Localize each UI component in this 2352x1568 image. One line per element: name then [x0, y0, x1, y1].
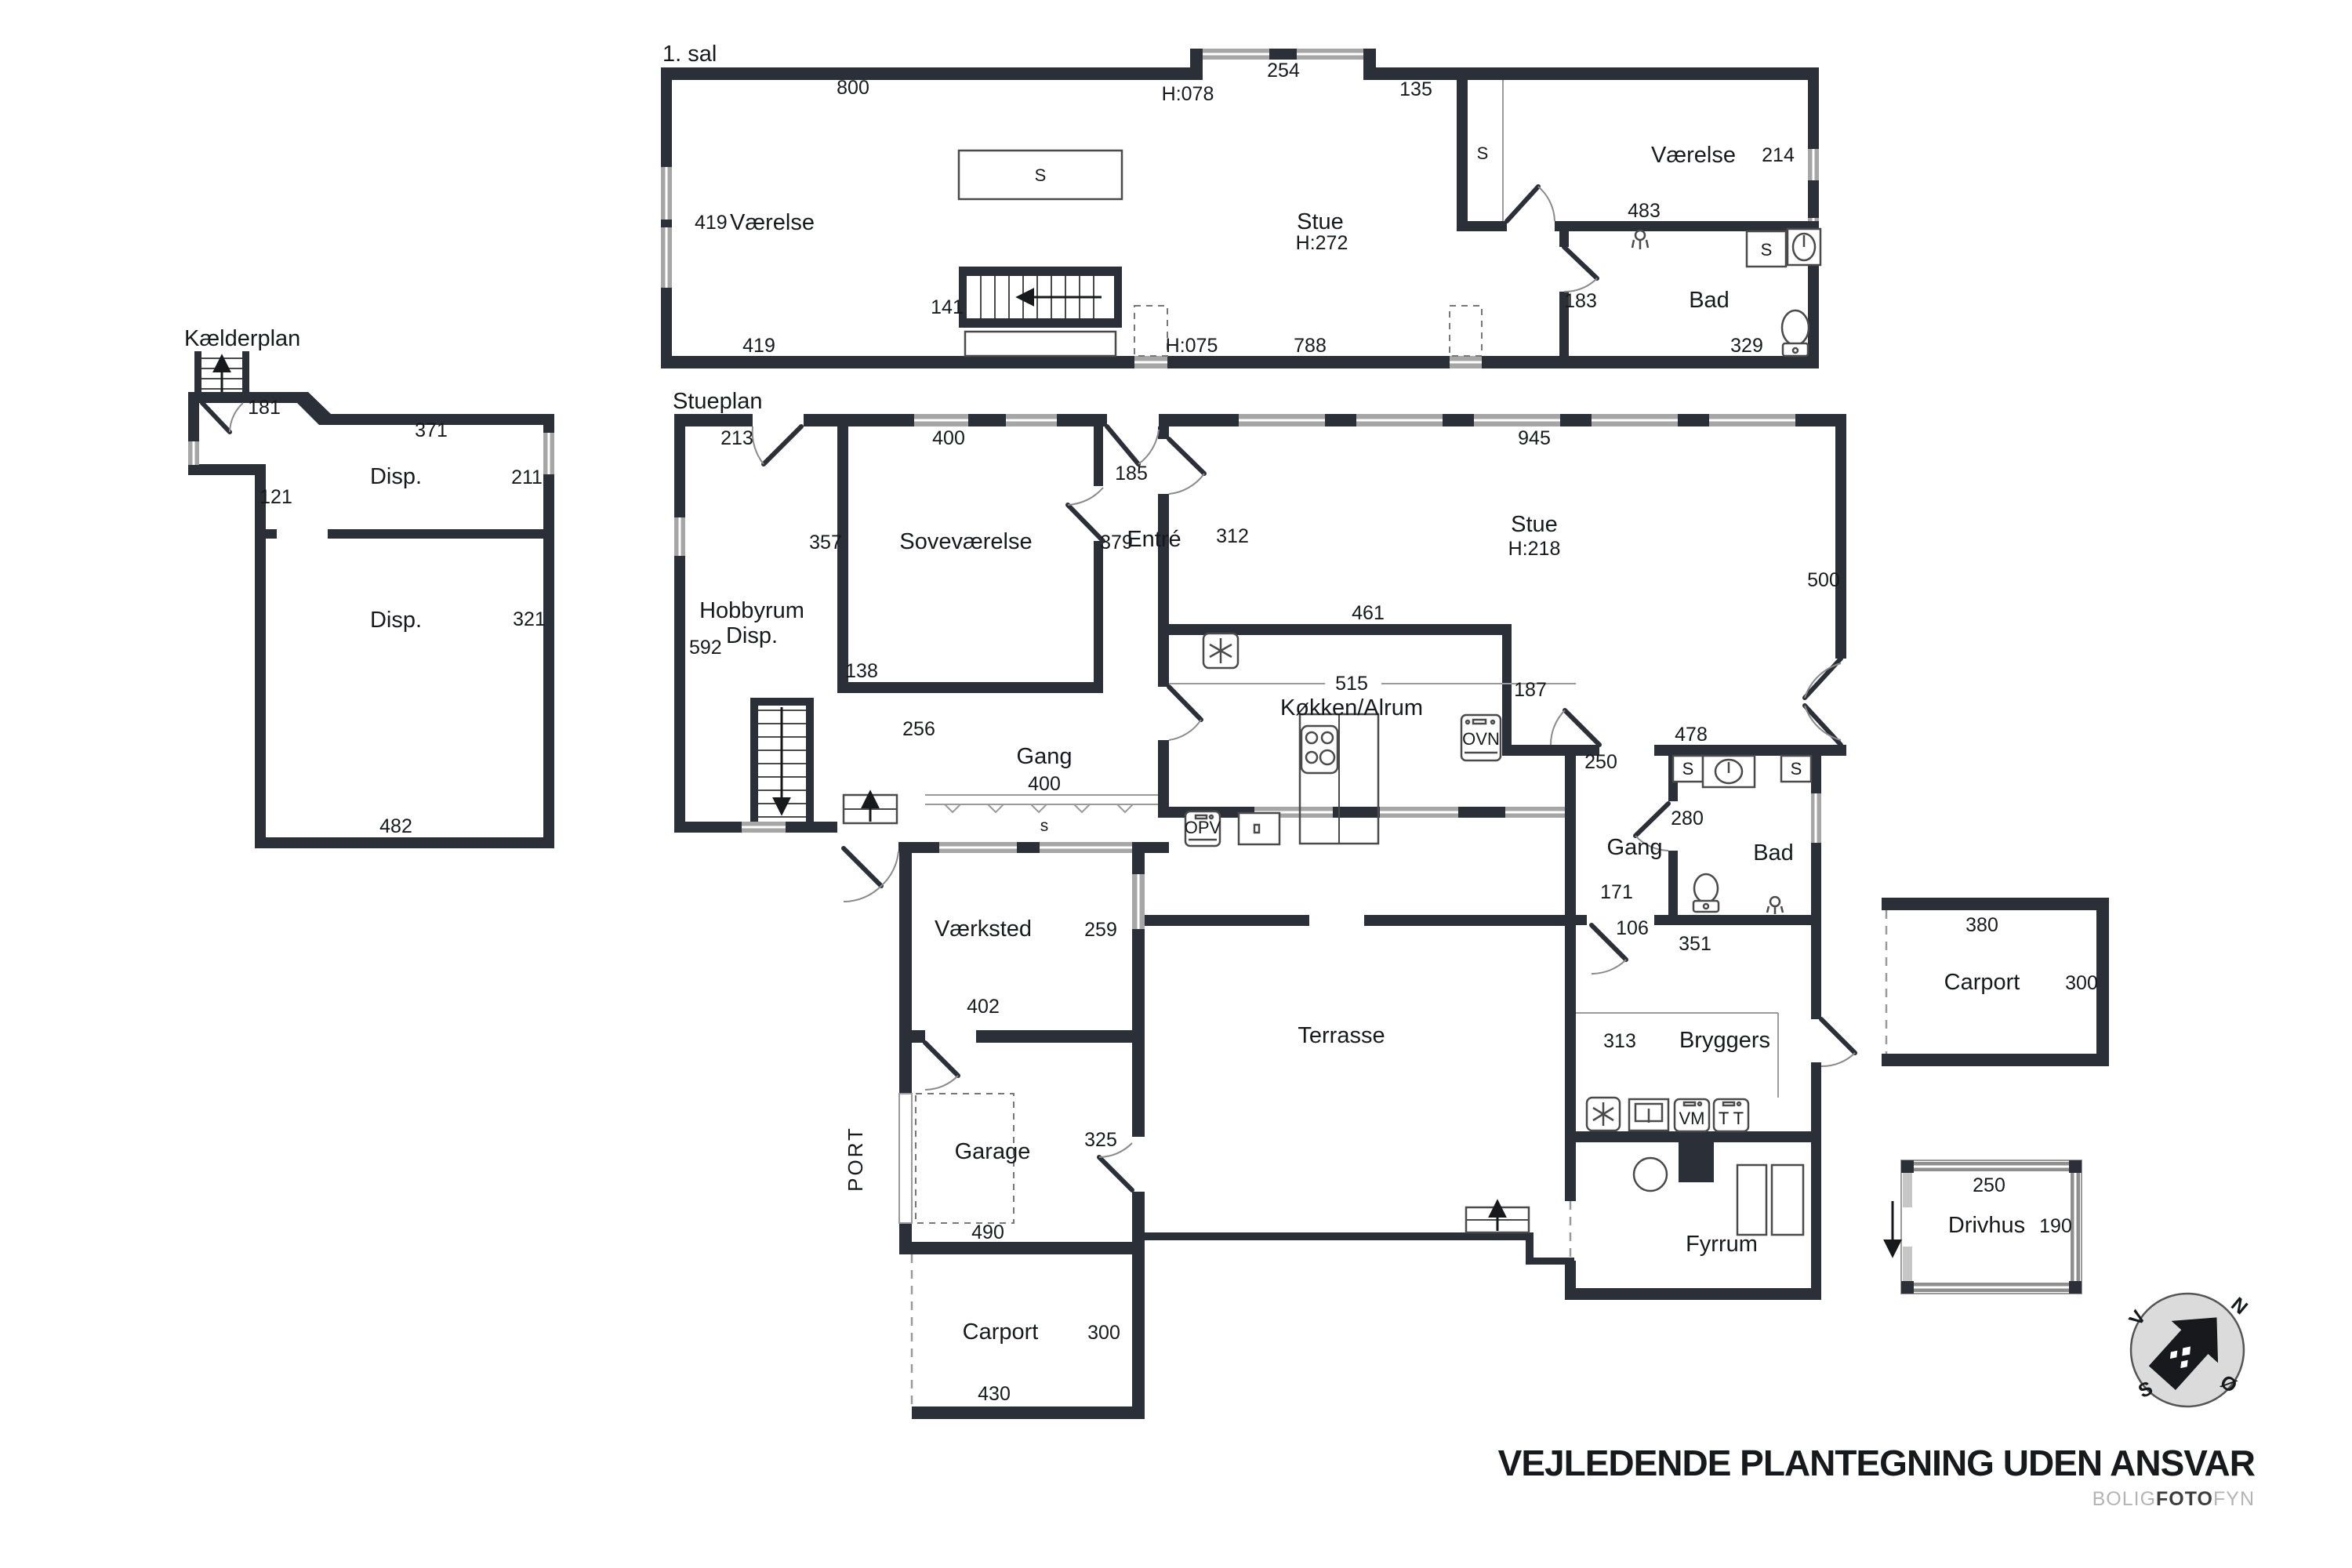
dim: 106 [1616, 917, 1649, 939]
dim: 478 [1675, 724, 1708, 746]
toilet-icon [1782, 310, 1809, 356]
wall [1811, 843, 1821, 1019]
door-leaf [202, 403, 230, 432]
brand-part-2: FOTO [2156, 1488, 2213, 1510]
wall [674, 822, 742, 833]
dim: 250 [1584, 751, 1617, 773]
door-arc [1592, 960, 1626, 974]
dim: 280 [1671, 808, 1704, 829]
door-arc [925, 1076, 958, 1090]
dim: 121 [260, 486, 292, 508]
dim: 187 [1514, 679, 1547, 701]
wall [1668, 915, 1811, 925]
door-leaf [1068, 505, 1103, 541]
brand-logo: BOLIGFOTOFYN [2092, 1488, 2255, 1510]
wall [1132, 1043, 1145, 1137]
stair-wall [806, 698, 814, 822]
wall [1808, 180, 1819, 218]
wall [1159, 414, 1239, 426]
room-label: Disp. [726, 623, 778, 648]
wall [1811, 1062, 1821, 1300]
door-leaf [1169, 439, 1204, 474]
room-label: Bryggers [1679, 1028, 1770, 1053]
basement-plan: Kælderplan [184, 326, 554, 848]
dim: 419 [742, 335, 775, 357]
wall [899, 842, 912, 1043]
stairs-down-icon [750, 698, 814, 822]
dim: 300 [1087, 1322, 1120, 1344]
wall [255, 837, 554, 848]
dim: 402 [967, 996, 1000, 1018]
room-label: Disp. [370, 464, 422, 489]
dim: 325 [1084, 1129, 1117, 1151]
dim: 461 [1352, 602, 1385, 624]
wall [1158, 635, 1169, 687]
wall [1363, 49, 1376, 80]
room-label: Hobbyrum [699, 598, 804, 623]
wall [1132, 842, 1145, 874]
door-arc [1821, 1053, 1855, 1066]
stair-wall [750, 698, 814, 706]
stair-wall [959, 318, 1122, 328]
dim: 138 [845, 660, 878, 682]
wall [1565, 1142, 1576, 1201]
wall [1376, 67, 1819, 80]
wall [1094, 426, 1103, 486]
room-label: Drivhus [1948, 1213, 2025, 1238]
dim: 500 [1807, 569, 1840, 591]
closet-hatches [945, 804, 1133, 812]
floorplan-page: 1. sal [0, 0, 2352, 1568]
wall [188, 392, 199, 441]
wall [976, 1030, 1145, 1043]
footer: VEJLEDENDE PLANTEGNING UDEN ANSVAR BOLIG… [1498, 1443, 2256, 1510]
wall [1017, 842, 1040, 853]
wall [837, 426, 848, 693]
corner-post [2069, 1281, 2082, 1294]
corner-post [1901, 1160, 1914, 1173]
terrace-edge [1145, 1232, 1531, 1240]
room-label: Disp. [370, 608, 422, 633]
wall [1565, 1288, 1821, 1300]
wardrobe-row [925, 795, 1158, 812]
wall [1364, 915, 1565, 926]
room-label: Stue [1511, 512, 1558, 537]
dim: 300 [2065, 972, 2098, 994]
wall [1325, 414, 1356, 426]
wall [255, 464, 266, 848]
first-floor-plan: 1. sal [661, 42, 1820, 368]
wall [1565, 915, 1587, 925]
terrace-steps-icon [1466, 1203, 1529, 1232]
dim: 483 [1628, 200, 1661, 222]
wall [1565, 925, 1576, 1142]
door-leaf [1099, 1157, 1132, 1190]
wall [1167, 356, 1450, 368]
room-height: H:272 [1296, 232, 1348, 254]
door-leaf [1507, 187, 1538, 221]
wall [1482, 356, 1819, 368]
dim: 185 [1115, 463, 1148, 485]
wall [1835, 426, 1846, 659]
dim: 183 [1564, 290, 1597, 312]
dryer-label: T T [1719, 1109, 1744, 1128]
door-leaf [1107, 426, 1138, 464]
plan-title: 1. sal [662, 42, 717, 67]
dim: 515 [1335, 673, 1368, 695]
tank [1772, 1165, 1803, 1235]
wall [674, 556, 685, 833]
ground-floor-plan: Stueplan [673, 389, 1855, 1419]
room-label: Terrasse [1298, 1023, 1385, 1048]
brand-part-3: FYN [2213, 1488, 2255, 1510]
wall [1882, 898, 2109, 910]
wall [266, 529, 277, 539]
sink-icon [1239, 813, 1279, 844]
floorplan-drawing: 1. sal [0, 0, 2352, 1568]
wall [1795, 414, 1846, 426]
dim: 141 [931, 296, 964, 318]
toilet-icon [1693, 874, 1719, 912]
door-arc [1169, 474, 1204, 494]
wall [242, 351, 249, 398]
room-label: Stue [1297, 209, 1344, 234]
dim: 171 [1600, 881, 1633, 903]
kitchen-island [1300, 714, 1378, 844]
wall [899, 1030, 925, 1043]
room-label: Carport [963, 1319, 1039, 1345]
corner-post [1901, 1281, 1914, 1294]
door-arc [1138, 430, 1159, 464]
dim: H:078 [1162, 83, 1214, 105]
door-leaf [1565, 710, 1599, 745]
wall [1269, 49, 1297, 60]
wall [674, 414, 685, 517]
dim: 400 [932, 427, 965, 449]
sink-icon [1788, 229, 1820, 265]
freezer-icon [1203, 633, 1238, 668]
dim: 400 [1028, 773, 1061, 795]
wall [1158, 426, 1169, 439]
wall [1094, 541, 1103, 693]
dim: 211 [511, 466, 543, 488]
sink-icon [1629, 1099, 1668, 1131]
dim: 254 [1267, 60, 1300, 82]
wall [1678, 414, 1709, 426]
door-leaf [1169, 687, 1201, 720]
stair-wall [1114, 267, 1122, 328]
room-label: Værelse [730, 210, 815, 235]
walls [188, 351, 554, 848]
door-leaf [764, 426, 801, 464]
wall [661, 67, 672, 167]
dim: 313 [1603, 1030, 1636, 1052]
door-arc [1551, 710, 1565, 745]
dim: 592 [689, 637, 722, 659]
garage-port-opening [899, 1094, 912, 1223]
wardrobe-label: S [1477, 143, 1489, 163]
dim: 259 [1084, 919, 1117, 941]
wall [899, 1043, 912, 1094]
wall [2096, 898, 2109, 1066]
wall [968, 414, 1006, 426]
tank [1737, 1165, 1766, 1235]
dim: 351 [1679, 933, 1711, 955]
stair-wall [959, 267, 1122, 276]
wall [786, 822, 837, 833]
room-label: Værksted [935, 916, 1032, 942]
dim: H:075 [1166, 335, 1218, 357]
wall [1190, 49, 1203, 80]
stove-icon [1301, 726, 1338, 773]
dim: 181 [248, 397, 281, 419]
dishwasher-label: OPV [1185, 818, 1221, 837]
dim: 490 [971, 1221, 1004, 1243]
brand-part-1: BOLIG [2092, 1488, 2156, 1510]
cabinet-label: S [1791, 759, 1802, 779]
wall [1457, 221, 1507, 231]
door-leaf [844, 848, 881, 886]
dim: 380 [1965, 914, 1998, 936]
room-label: Køkken/Alrum [1280, 695, 1423, 720]
wall [194, 351, 201, 398]
wall [1458, 807, 1505, 818]
door-arc [1169, 720, 1201, 740]
dim: 371 [415, 419, 448, 441]
room-height: H:218 [1508, 538, 1561, 560]
wall [543, 414, 554, 433]
door-leaf [1564, 247, 1597, 278]
wall [1443, 414, 1474, 426]
wall [804, 414, 914, 426]
wall [328, 529, 554, 539]
dim: 800 [837, 77, 869, 99]
dim: 250 [1973, 1174, 2005, 1196]
dim: 430 [978, 1383, 1011, 1405]
room-label: Bad [1689, 288, 1730, 313]
room-label: Entré [1127, 527, 1181, 552]
dim: 482 [379, 815, 412, 837]
coat-hook-icon [1767, 897, 1783, 914]
wall [661, 356, 1134, 368]
port-label: PORT [844, 1126, 867, 1192]
dim: 135 [1399, 78, 1432, 100]
stair-wall [750, 698, 758, 822]
chimney-block [1679, 1131, 1714, 1182]
room-label: Gang [1017, 744, 1073, 769]
wall [1555, 221, 1819, 231]
greenhouse-wall [1903, 1173, 1912, 1207]
room-label: Fyrrum [1686, 1232, 1758, 1257]
dim: 329 [1730, 335, 1763, 357]
greenhouse-wall [1903, 1247, 1912, 1281]
door-arc [1538, 187, 1555, 221]
wall [837, 682, 1094, 693]
cabinet-label: S [1682, 759, 1694, 779]
room-label: Gang [1607, 835, 1663, 860]
dim: 945 [1518, 427, 1551, 449]
dim: 256 [902, 718, 935, 740]
wall [1132, 929, 1145, 1043]
wall [661, 67, 1190, 80]
dim: 214 [1762, 144, 1795, 166]
wall [1132, 1254, 1145, 1419]
wall [1457, 80, 1468, 221]
stairs-icon [959, 267, 1122, 356]
wall [1057, 414, 1107, 426]
wall [1654, 915, 1668, 925]
wall [1811, 745, 1821, 793]
freezer-icon [1587, 1098, 1620, 1131]
walls [674, 414, 1846, 1419]
door-leaf [1635, 804, 1668, 836]
dim: 213 [720, 427, 753, 449]
disclaimer-text: VEJLEDENDE PLANTEGNING UDEN ANSVAR [1498, 1443, 2256, 1483]
dim: 357 [809, 532, 842, 554]
door-arc [230, 403, 243, 432]
wall [1565, 1131, 1679, 1142]
room-label: Bad [1753, 840, 1794, 866]
dim: 419 [695, 212, 728, 234]
wall [1145, 915, 1309, 926]
flue-dashed-box [1450, 306, 1482, 356]
wall [1560, 414, 1592, 426]
wall [1158, 740, 1169, 811]
wall [1502, 635, 1512, 745]
dim: 190 [2039, 1215, 2072, 1237]
room-label: Garage [955, 1139, 1031, 1164]
wall [1565, 756, 1576, 925]
wardrobe-label: S [1035, 165, 1047, 185]
stair-landing [965, 332, 1116, 356]
flue-dashed-box [1134, 306, 1167, 356]
oven-label: OVN [1462, 729, 1500, 749]
coat-hook-icon [1632, 230, 1648, 249]
washing-machine-label: VM [1679, 1109, 1705, 1128]
wall [188, 465, 199, 475]
carport-plan: 380 Carport 300 [1882, 898, 2109, 1066]
greenhouse-plan: 250 Drivhus 190 [1893, 1160, 2082, 1294]
sink-icon [1703, 756, 1755, 787]
room-label: Carport [1944, 970, 2020, 995]
wall [661, 220, 672, 227]
wall [899, 1242, 1145, 1254]
wall [1882, 1054, 2109, 1066]
door-leaf [925, 1043, 958, 1076]
room-label: Værelse [1651, 143, 1736, 168]
compass-icon: N V S Ø [2125, 1293, 2252, 1406]
entry-steps-icon [844, 793, 897, 823]
dim: 312 [1216, 525, 1249, 547]
cabinet-label: S [1761, 240, 1773, 260]
plan-title: Stueplan [673, 389, 763, 414]
wall [1808, 67, 1819, 149]
corner-post [2069, 1160, 2082, 1173]
closet-label: s [1040, 817, 1049, 835]
wall [1668, 851, 1678, 915]
room-label: Soveværelse [899, 529, 1032, 554]
terrace-edge [1526, 1258, 1574, 1265]
wall [912, 1406, 1145, 1419]
wall [1158, 494, 1169, 624]
door-arc [1068, 488, 1103, 505]
door-leaf [1821, 1019, 1855, 1053]
boiler-icon [1634, 1158, 1667, 1191]
door-arc [753, 426, 764, 464]
wall [1714, 1131, 1821, 1142]
dim: 788 [1294, 335, 1327, 357]
plan-title: Kælderplan [184, 326, 300, 351]
wall [1808, 263, 1819, 368]
dim: 321 [513, 608, 546, 630]
wall [674, 414, 753, 426]
